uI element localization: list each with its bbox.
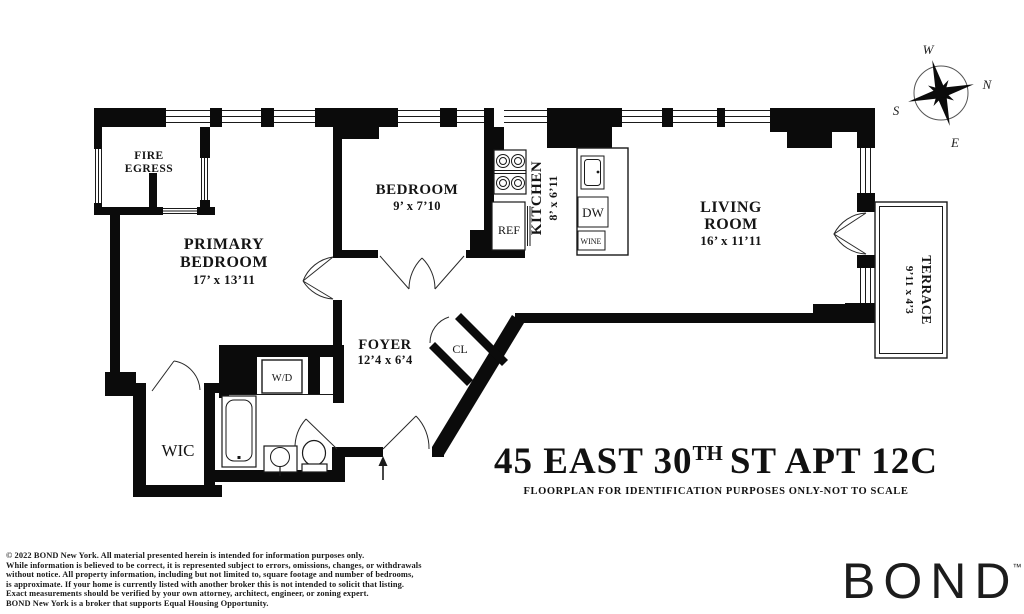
bedroom-dims: 9’ x 7’10 bbox=[393, 199, 441, 213]
fire-egress-label: FIRE bbox=[134, 150, 163, 162]
disclaimer-line: is approximate. If your home is currentl… bbox=[6, 580, 422, 590]
page-title: 45 EAST 30THST APT 12C bbox=[462, 440, 970, 483]
title-prefix: 45 EAST 30 bbox=[494, 441, 693, 482]
compass-s: S bbox=[893, 103, 900, 118]
toilet bbox=[302, 441, 327, 473]
dishwasher-label: DW bbox=[582, 205, 604, 220]
foyer-dims: 12’4 x 6’4 bbox=[357, 353, 413, 367]
terrace-label: TERRACE bbox=[919, 255, 934, 325]
primary-bedroom-dims: 17’ x 13’11 bbox=[193, 272, 255, 287]
compass-w: W bbox=[923, 42, 935, 57]
closet-label: CL bbox=[452, 342, 467, 356]
title-suffix: ST APT 12C bbox=[730, 441, 938, 482]
primary-bedroom-label1: PRIMARY bbox=[184, 236, 264, 253]
bond-logo: BOND™ bbox=[842, 552, 1021, 610]
floorplan-page: FIRE EGRESS PRIMARY BEDROOM 17’ x 13’11 … bbox=[0, 0, 1024, 614]
foyer-label: FOYER bbox=[358, 337, 411, 353]
bathtub bbox=[222, 396, 256, 467]
compass-e: E bbox=[950, 135, 959, 150]
primary-bedroom-label2: BEDROOM bbox=[180, 254, 268, 271]
entry-arrow bbox=[379, 456, 388, 480]
bond-logo-text: BOND bbox=[842, 553, 1018, 609]
title-superscript: TH bbox=[693, 441, 723, 465]
disclaimer-line: without notice. All property information… bbox=[6, 570, 422, 580]
disclaimer-line: While information is believed to be corr… bbox=[6, 561, 422, 571]
trademark-symbol: ™ bbox=[1012, 562, 1021, 572]
living-room-label1: LIVING bbox=[700, 199, 762, 216]
disclaimer-line: © 2022 BOND New York. All material prese… bbox=[6, 551, 422, 561]
terrace-dims: 9’11 x 4’3 bbox=[903, 266, 915, 314]
wine-label: WINE bbox=[581, 237, 602, 246]
bath-sink bbox=[264, 446, 297, 476]
kitchen-dims: 8’ x 6’11 bbox=[546, 175, 560, 220]
kitchen-label: KITCHEN bbox=[529, 161, 545, 235]
wic-label: WIC bbox=[161, 441, 194, 460]
washer-dryer-label: W/D bbox=[272, 373, 293, 384]
walls bbox=[94, 108, 875, 497]
compass-n: N bbox=[982, 77, 993, 92]
disclaimer: © 2022 BOND New York. All material prese… bbox=[6, 551, 422, 609]
disclaimer-line: BOND New York is a broker that supports … bbox=[6, 599, 422, 609]
floor-plan: FIRE EGRESS PRIMARY BEDROOM 17’ x 13’11 … bbox=[0, 0, 1024, 614]
title-block: 45 EAST 30THST APT 12C FLOORPLAN FOR IDE… bbox=[462, 440, 970, 497]
refrigerator-label: REF bbox=[498, 223, 520, 237]
compass: W N S E bbox=[893, 42, 993, 150]
title-subtitle: FLOORPLAN FOR IDENTIFICATION PURPOSES ON… bbox=[462, 486, 970, 497]
stove bbox=[494, 150, 526, 194]
living-room-label2: ROOM bbox=[704, 216, 758, 233]
living-room-dims: 16’ x 11’11 bbox=[700, 233, 762, 248]
bedroom-label: BEDROOM bbox=[376, 182, 459, 198]
fire-egress-label2: EGRESS bbox=[125, 163, 173, 175]
disclaimer-line: Exact measurements should be verified by… bbox=[6, 589, 422, 599]
